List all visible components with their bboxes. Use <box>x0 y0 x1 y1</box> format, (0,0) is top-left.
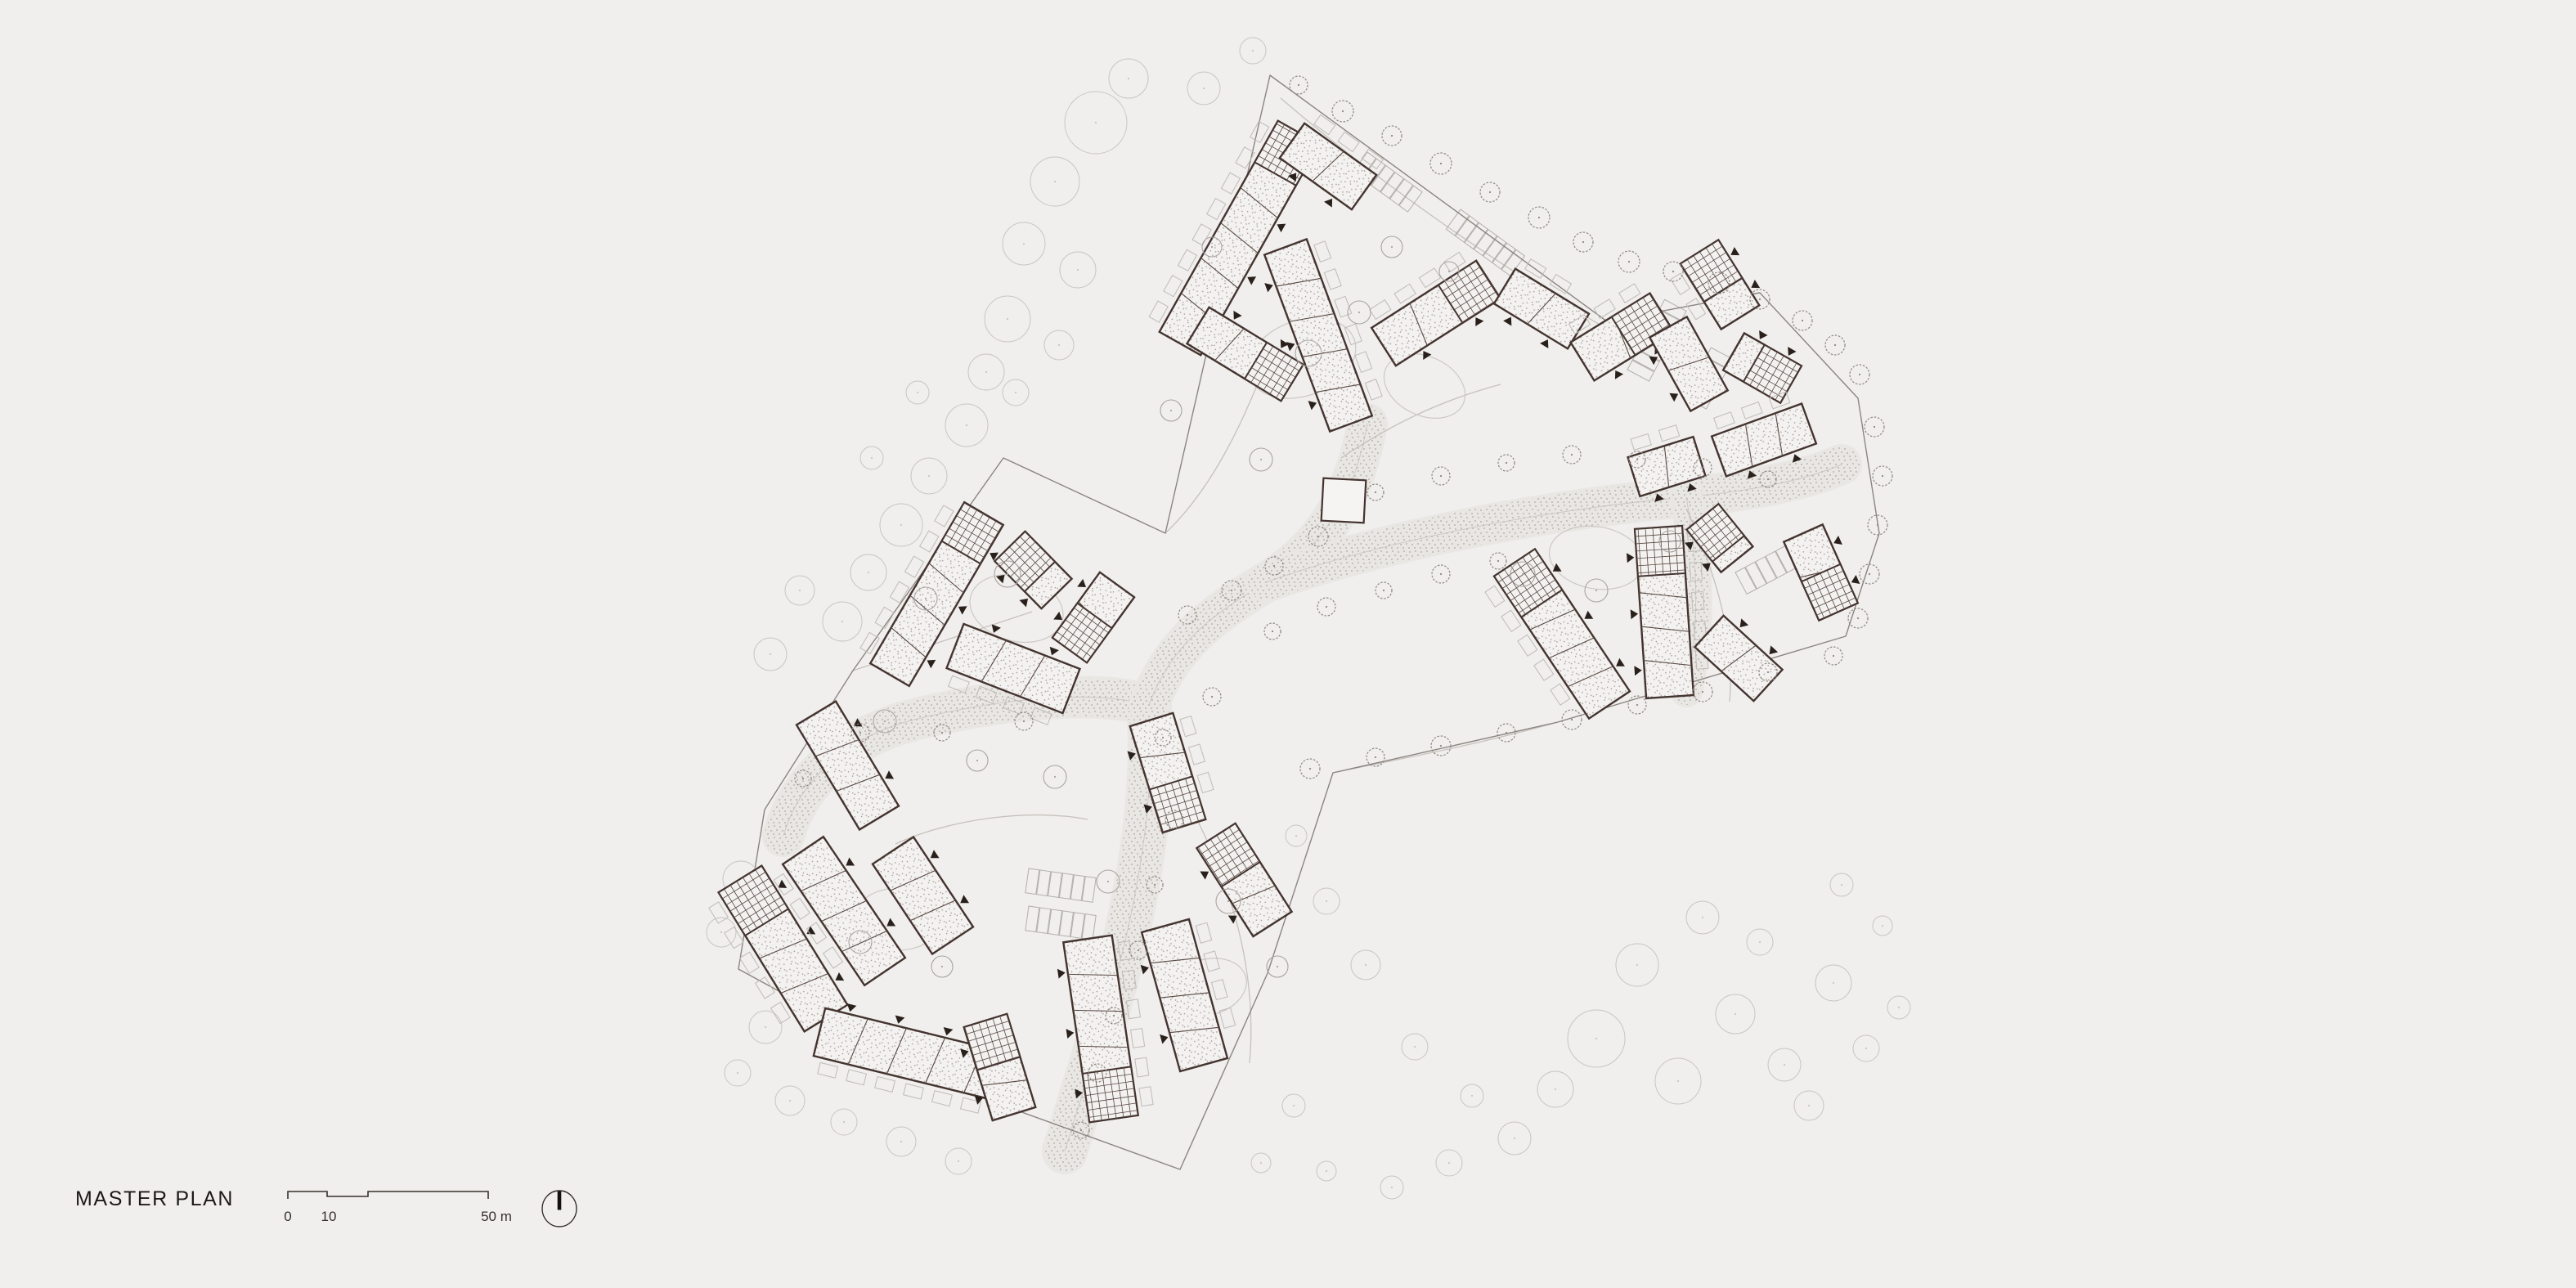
master-plan-drawing: MASTER PLAN 0 10 50 m <box>0 0 2576 1288</box>
site-plan-canvas <box>0 0 2576 1288</box>
central-pavilion <box>1322 478 1367 523</box>
